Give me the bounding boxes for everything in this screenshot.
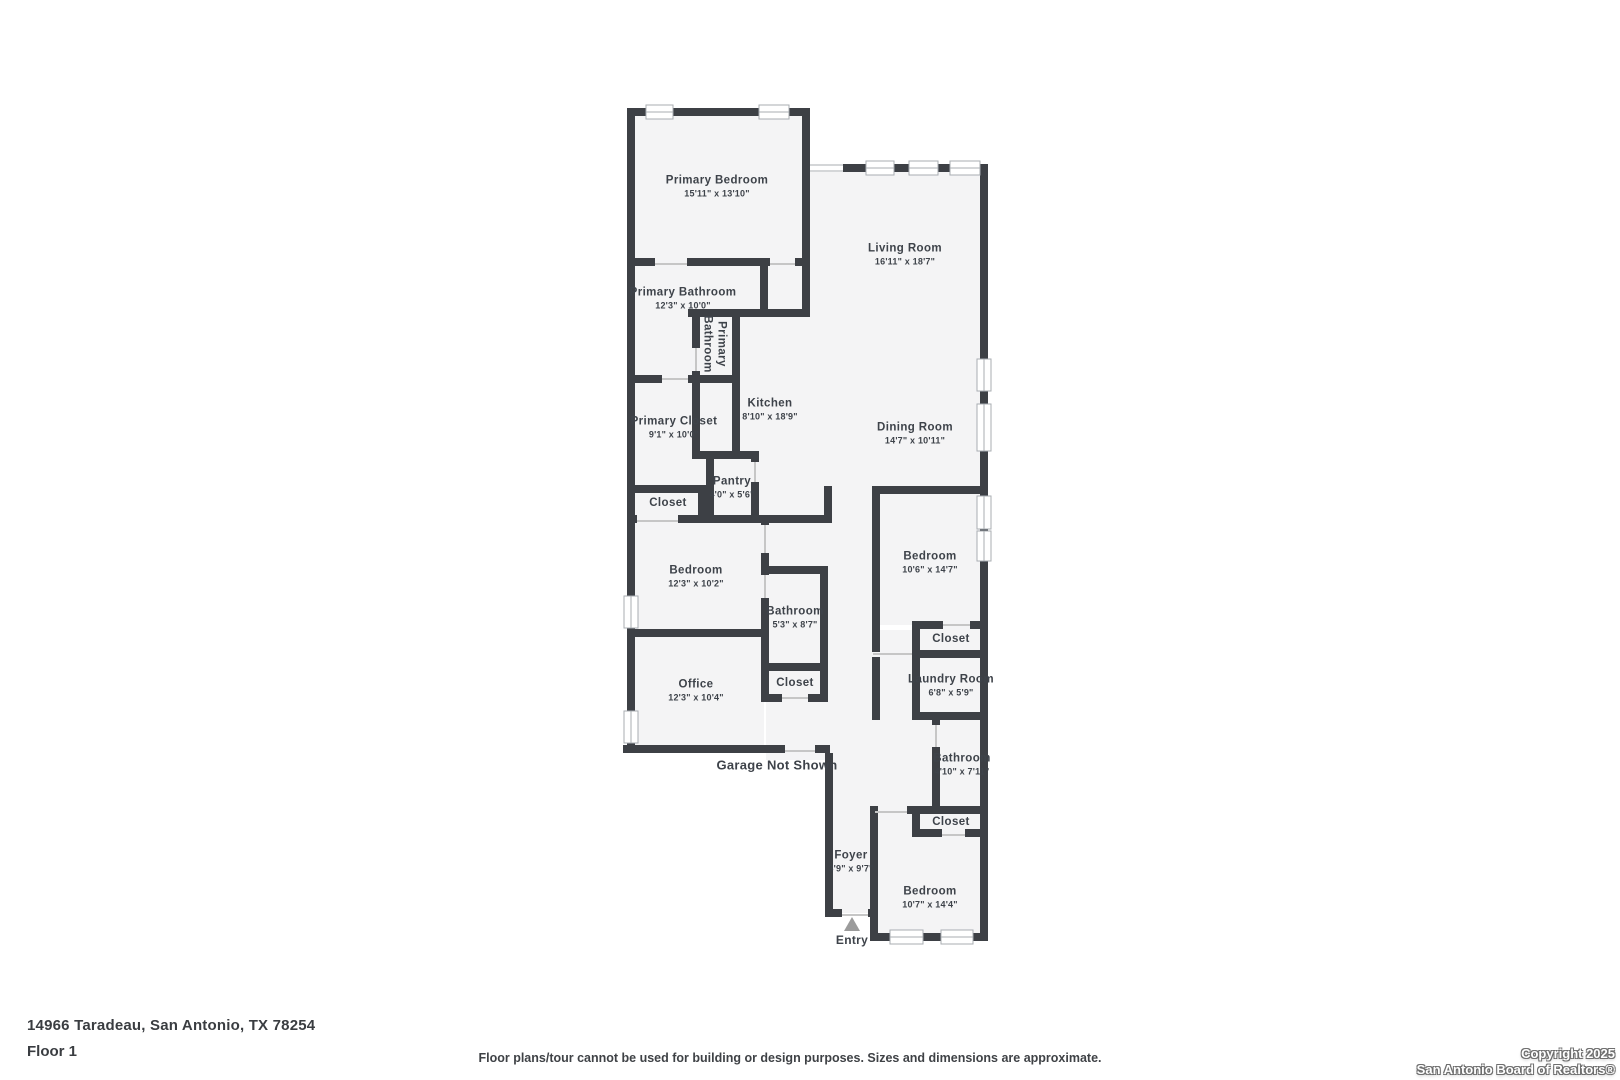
entry-label: Entry (836, 933, 868, 947)
room-name: Closet (776, 676, 814, 690)
room-name: Kitchen (742, 397, 797, 411)
garage-note-label: Garage Not Shown (716, 758, 837, 773)
room-name: Dining Room (877, 421, 953, 435)
room-dimensions: 15'11" x 13'10" (666, 189, 769, 200)
room-label-primary-bathroom: Primary Bathroom12'3" x 10'0" (630, 286, 737, 313)
room-dimensions: 3'9" x 9'7" (828, 864, 873, 875)
floor-plan-page: Primary Bedroom15'11" x 13'10"Living Roo… (0, 0, 1620, 1080)
room-label-laundry-room: Laundry Room6'8" x 5'9" (908, 673, 994, 700)
room-label-closet-hall-upper: Closet (649, 496, 687, 510)
room-dimensions: 14'7" x 10'11" (877, 436, 953, 447)
room-label-primary-bathroom-wc: PrimaryBathroom (700, 315, 729, 373)
room-dimensions: 10'7" x 14'4" (902, 900, 957, 911)
floor-plan-drawing (0, 0, 1620, 1080)
room-name: Bedroom (902, 550, 957, 564)
room-name: Bathroom (700, 315, 714, 373)
room-dimensions: 8'10" x 18'9" (742, 412, 797, 423)
room-label-primary-closet: Primary Closet9'1" x 10'0" (631, 415, 718, 442)
room-name: Foyer (828, 849, 873, 863)
room-label-closet-east: Closet (932, 632, 970, 646)
room-dimensions: 4'10" x 7'11" (933, 767, 991, 778)
room-name: Closet (932, 632, 970, 646)
room-dimensions: 5'3" x 8'7" (766, 620, 824, 631)
room-name: Laundry Room (908, 673, 994, 687)
room-name: Primary Bathroom (630, 286, 737, 300)
room-label-bathroom-east: Bathroom4'10" x 7'11" (933, 752, 991, 779)
room-label-primary-bedroom: Primary Bedroom15'11" x 13'10" (666, 174, 769, 201)
room-label-pantry: Pantry4'0" x 5'6" (709, 475, 754, 502)
room-name: Pantry (709, 475, 754, 489)
copyright-notice: Copyright 2025 San Antonio Board of Real… (1417, 1046, 1615, 1078)
room-label-bedroom-west: Bedroom12'3" x 10'2" (668, 564, 723, 591)
room-label-bathroom-mid: Bathroom5'3" x 8'7" (766, 605, 824, 632)
room-dimensions: 12'3" x 10'0" (630, 301, 737, 312)
room-name: Primary (714, 315, 728, 373)
disclaimer-text: Floor plans/tour cannot be used for buil… (0, 1051, 1580, 1065)
room-name: Bedroom (668, 564, 723, 578)
room-label-foyer: Foyer3'9" x 9'7" (828, 849, 873, 876)
room-name: Closet (932, 815, 970, 829)
room-label-bedroom-east: Bedroom10'6" x 14'7" (902, 550, 957, 577)
room-name: Primary Closet (631, 415, 718, 429)
room-name: Closet (649, 496, 687, 510)
room-label-kitchen: Kitchen8'10" x 18'9" (742, 397, 797, 424)
room-label-bedroom-south: Bedroom10'7" x 14'4" (902, 885, 957, 912)
room-name: Office (668, 678, 723, 692)
room-dimensions: 4'0" x 5'6" (709, 490, 754, 501)
room-dimensions: 12'3" x 10'4" (668, 693, 723, 704)
room-dimensions: 12'3" x 10'2" (668, 579, 723, 590)
entry-arrow-icon (844, 917, 860, 931)
room-label-closet-mid: Closet (776, 676, 814, 690)
room-name: Bedroom (902, 885, 957, 899)
room-label-living-room: Living Room16'11" x 18'7" (868, 242, 942, 269)
room-label-closet-south: Closet (932, 815, 970, 829)
copyright-line-2: San Antonio Board of Realtors® (1417, 1062, 1615, 1078)
room-dimensions: 10'6" x 14'7" (902, 565, 957, 576)
property-address: 14966 Taradeau, San Antonio, TX 78254 (27, 1017, 315, 1034)
room-dimensions: 6'8" x 5'9" (908, 688, 994, 699)
room-label-dining-room: Dining Room14'7" x 10'11" (877, 421, 953, 448)
room-dimensions: 16'11" x 18'7" (868, 257, 942, 268)
room-name: Bathroom (766, 605, 824, 619)
room-name: Living Room (868, 242, 942, 256)
room-dimensions: 9'1" x 10'0" (631, 430, 718, 441)
room-name: Bathroom (933, 752, 991, 766)
room-name: Primary Bedroom (666, 174, 769, 188)
room-label-office: Office12'3" x 10'4" (668, 678, 723, 705)
copyright-line-1: Copyright 2025 (1417, 1046, 1615, 1062)
